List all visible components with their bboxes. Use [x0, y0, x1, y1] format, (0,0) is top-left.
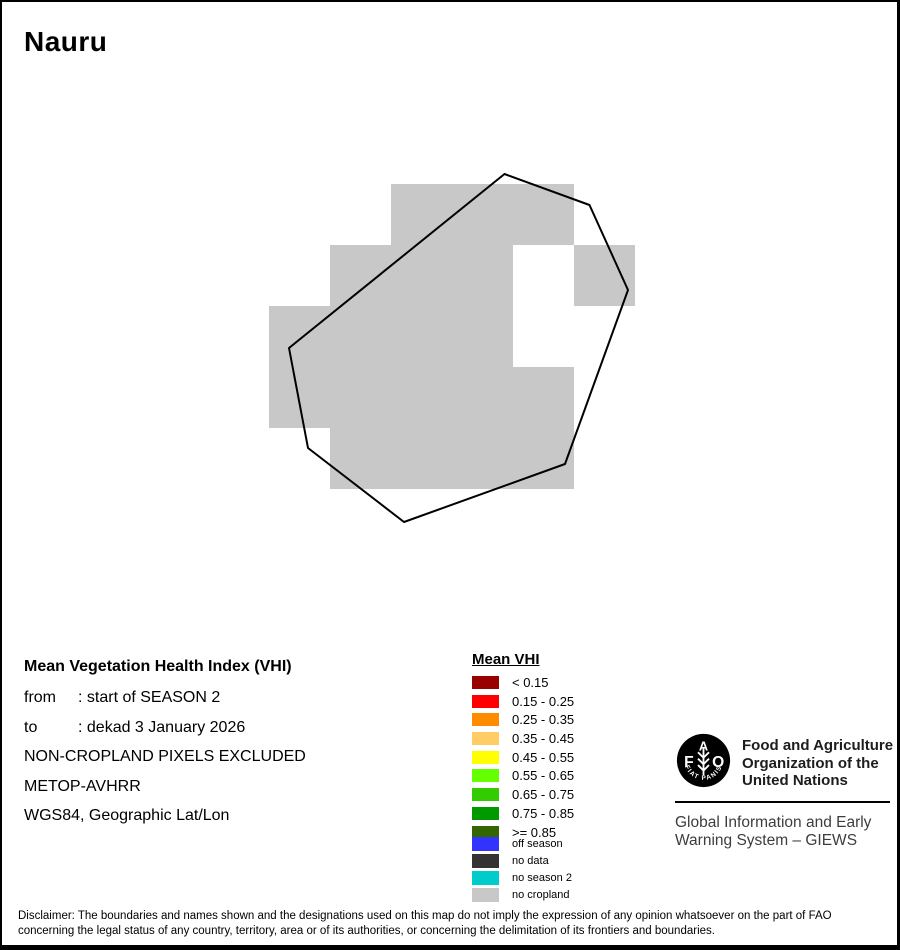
- legend-swatch: [472, 676, 499, 689]
- no-cropland-cell: [391, 306, 452, 367]
- legend-swatch: [472, 871, 499, 885]
- giews-line: Warning System – GIEWS: [675, 832, 871, 850]
- legend-label: < 0.15: [512, 675, 549, 690]
- no-cropland-cell: [452, 184, 513, 245]
- no-cropland-cell: [513, 184, 574, 245]
- legend-row: no cropland: [472, 888, 572, 902]
- fao-divider: [675, 801, 890, 803]
- fao-org-line: United Nations: [742, 772, 893, 790]
- legend-label: no cropland: [512, 889, 570, 901]
- legend-row: 0.15 - 0.25: [472, 694, 574, 709]
- no-cropland-cell: [330, 245, 391, 306]
- page-title: Nauru: [24, 26, 107, 58]
- giews-line: Global Information and Early: [675, 814, 871, 832]
- disclaimer: Disclaimer: The boundaries and names sho…: [18, 909, 832, 938]
- info-from-label: from: [24, 689, 78, 707]
- info-to-label: to: [24, 719, 78, 737]
- legend-row: no season 2: [472, 871, 572, 885]
- legend-label: 0.25 - 0.35: [512, 712, 574, 727]
- legend-swatch: [472, 807, 499, 820]
- no-cropland-cell: [452, 428, 513, 489]
- legend-label: no data: [512, 855, 549, 867]
- legend-row: 0.55 - 0.65: [472, 768, 574, 783]
- fao-org-line: Food and Agriculture: [742, 737, 893, 755]
- info-line-projection: WGS84, Geographic Lat/Lon: [24, 807, 306, 825]
- vhi-legend: Mean VHI < 0.150.15 - 0.250.25 - 0.350.3…: [472, 651, 574, 843]
- legend-label: off season: [512, 838, 563, 850]
- vhi-legend-rows: < 0.150.15 - 0.250.25 - 0.350.35 - 0.450…: [472, 675, 574, 840]
- giews-label: Global Information and Early Warning Sys…: [675, 814, 871, 850]
- legend-swatch: [472, 732, 499, 745]
- legend-swatch: [472, 769, 499, 782]
- no-cropland-cell: [391, 245, 452, 306]
- legend-row: 0.45 - 0.55: [472, 750, 574, 765]
- legend-row: off season: [472, 837, 572, 851]
- legend-row: 0.25 - 0.35: [472, 712, 574, 727]
- info-to-value: : dekad 3 January 2026: [78, 719, 245, 736]
- no-cropland-cell: [269, 306, 330, 367]
- legend-title: Mean VHI: [472, 651, 574, 668]
- map-canvas: [242, 152, 662, 552]
- legend-row: 0.35 - 0.45: [472, 731, 574, 746]
- no-cropland-cell: [391, 367, 452, 428]
- no-cropland-cell: [452, 367, 513, 428]
- legend-row: no data: [472, 854, 572, 868]
- extra-legend-rows: off seasonno datano season 2no cropland: [472, 837, 572, 905]
- legend-swatch: [472, 888, 499, 902]
- legend-label: no season 2: [512, 872, 572, 884]
- legend-swatch: [472, 837, 499, 851]
- no-cropland-cell: [269, 367, 330, 428]
- legend-row: 0.75 - 0.85: [472, 806, 574, 821]
- map-page: Nauru Mean Vegetation Health Index (VHI)…: [0, 0, 900, 950]
- legend-swatch: [472, 695, 499, 708]
- no-cropland-cell: [452, 245, 513, 306]
- legend-label: 0.35 - 0.45: [512, 731, 574, 746]
- info-line-to: to: dekad 3 January 2026: [24, 719, 306, 737]
- legend-row: 0.65 - 0.75: [472, 787, 574, 802]
- info-line-sensor: METOP-AVHRR: [24, 778, 306, 796]
- no-cropland-cell: [513, 367, 574, 428]
- fao-org-line: Organization of the: [742, 755, 893, 773]
- disclaimer-line: Disclaimer: The boundaries and names sho…: [18, 909, 832, 924]
- legend-swatch: [472, 751, 499, 764]
- legend-swatch: [472, 788, 499, 801]
- legend-label: 0.75 - 0.85: [512, 806, 574, 821]
- legend-label: 0.65 - 0.75: [512, 787, 574, 802]
- legend-label: 0.45 - 0.55: [512, 750, 574, 765]
- legend-swatch: [472, 854, 499, 868]
- legend-swatch: [472, 713, 499, 726]
- legend-label: 0.15 - 0.25: [512, 694, 574, 709]
- no-cropland-cell: [452, 306, 513, 367]
- fao-org-name: Food and Agriculture Organization of the…: [742, 737, 893, 790]
- legend-row: < 0.15: [472, 675, 574, 690]
- no-cropland-cell: [330, 367, 391, 428]
- fao-logo-icon: F A O FIAT PANIS: [676, 733, 731, 788]
- no-cropland-cell: [391, 428, 452, 489]
- no-cropland-cell: [330, 306, 391, 367]
- disclaimer-line: concerning the legal status of any count…: [18, 924, 832, 939]
- no-cropland-cell: [330, 428, 391, 489]
- info-from-value: : start of SEASON 2: [78, 689, 220, 706]
- info-line-excluded: NON-CROPLAND PIXELS EXCLUDED: [24, 748, 306, 766]
- info-heading: Mean Vegetation Health Index (VHI): [24, 658, 306, 676]
- map-info-block: Mean Vegetation Health Index (VHI) from:…: [24, 658, 306, 837]
- no-cropland-cell: [391, 184, 452, 245]
- info-line-from: from: start of SEASON 2: [24, 689, 306, 707]
- legend-label: 0.55 - 0.65: [512, 768, 574, 783]
